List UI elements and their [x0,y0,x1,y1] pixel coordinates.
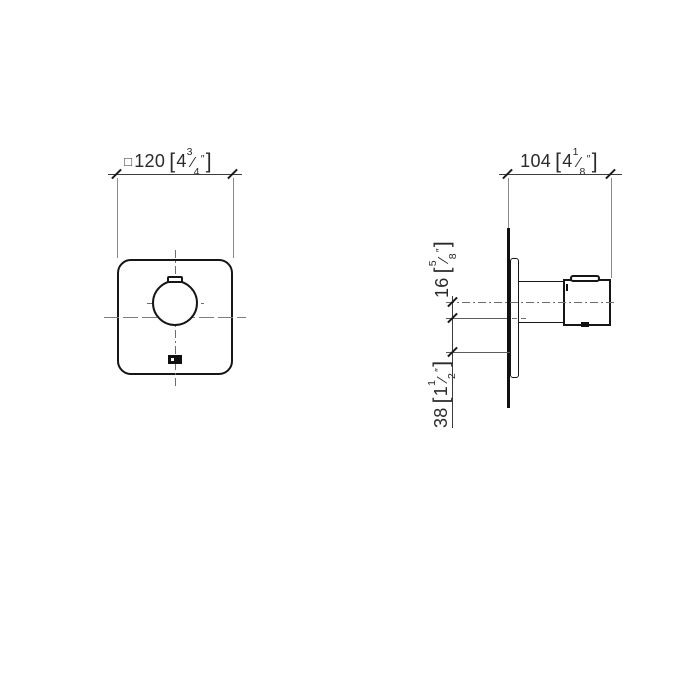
left-bracket: [ [555,150,561,173]
handle-seam-mark [566,284,568,291]
inch-mark: ″ [201,153,205,165]
right-bracket: ] [206,150,212,173]
technical-drawing-canvas: □120[43⁄4″] 104[41⁄8″] [0,0,700,700]
side-depth-mm: 104 [520,151,551,171]
front-width-frac-numerator: 3 [187,146,193,158]
front-width-dimension-line [108,174,242,175]
right-bracket: ] [430,361,453,367]
marker-reference-line [446,352,510,353]
left-bracket: [ [430,397,453,403]
inch-mark: ″ [434,248,446,252]
thermostat-knob [152,280,198,326]
temperature-marker-dot [171,358,174,361]
plate-center-reference-line [446,318,507,319]
square-section-symbol: □ [124,154,132,169]
inch-mark: ″ [433,368,445,372]
extension-line [611,178,612,278]
offset-upper-mm: 16 [432,277,452,298]
hidden-line-segment [512,318,527,319]
front-width-inch-whole: 4 [176,151,186,171]
extension-line [233,178,234,258]
front-width-frac-denominator: 4 [194,166,200,178]
right-bracket: ] [592,150,598,173]
offset-lower-dimension-label: 38[11⁄2″] [426,354,448,428]
front-width-mm: 120 [134,151,165,171]
left-bracket: [ [431,267,454,273]
extension-line [117,178,118,258]
valve-axis-centerline [446,302,617,303]
offset-upper-frac-denominator: 8 [447,253,459,259]
right-bracket: ] [431,241,454,247]
side-depth-frac-numerator: 1 [573,146,579,158]
offset-lower-frac-denominator: 2 [446,373,458,379]
side-depth-frac-denominator: 8 [580,166,586,178]
offset-upper-frac-numerator: 5 [427,260,439,266]
side-depth-inch-whole: 4 [562,151,572,171]
inch-mark: ″ [587,153,591,165]
offset-lower-frac-numerator: 1 [426,380,438,386]
offset-upper-dimension-label: 16[5⁄8″] [427,236,449,298]
left-bracket: [ [169,150,175,173]
extension-line [508,178,509,228]
handle-bottom-mark [581,322,589,327]
side-depth-dimension-line [499,174,622,175]
handle-index-tab [570,275,600,282]
offset-lower-inch-whole: 1 [431,386,451,396]
offset-lower-mm: 38 [431,407,451,428]
knob-index-tab [167,276,183,283]
